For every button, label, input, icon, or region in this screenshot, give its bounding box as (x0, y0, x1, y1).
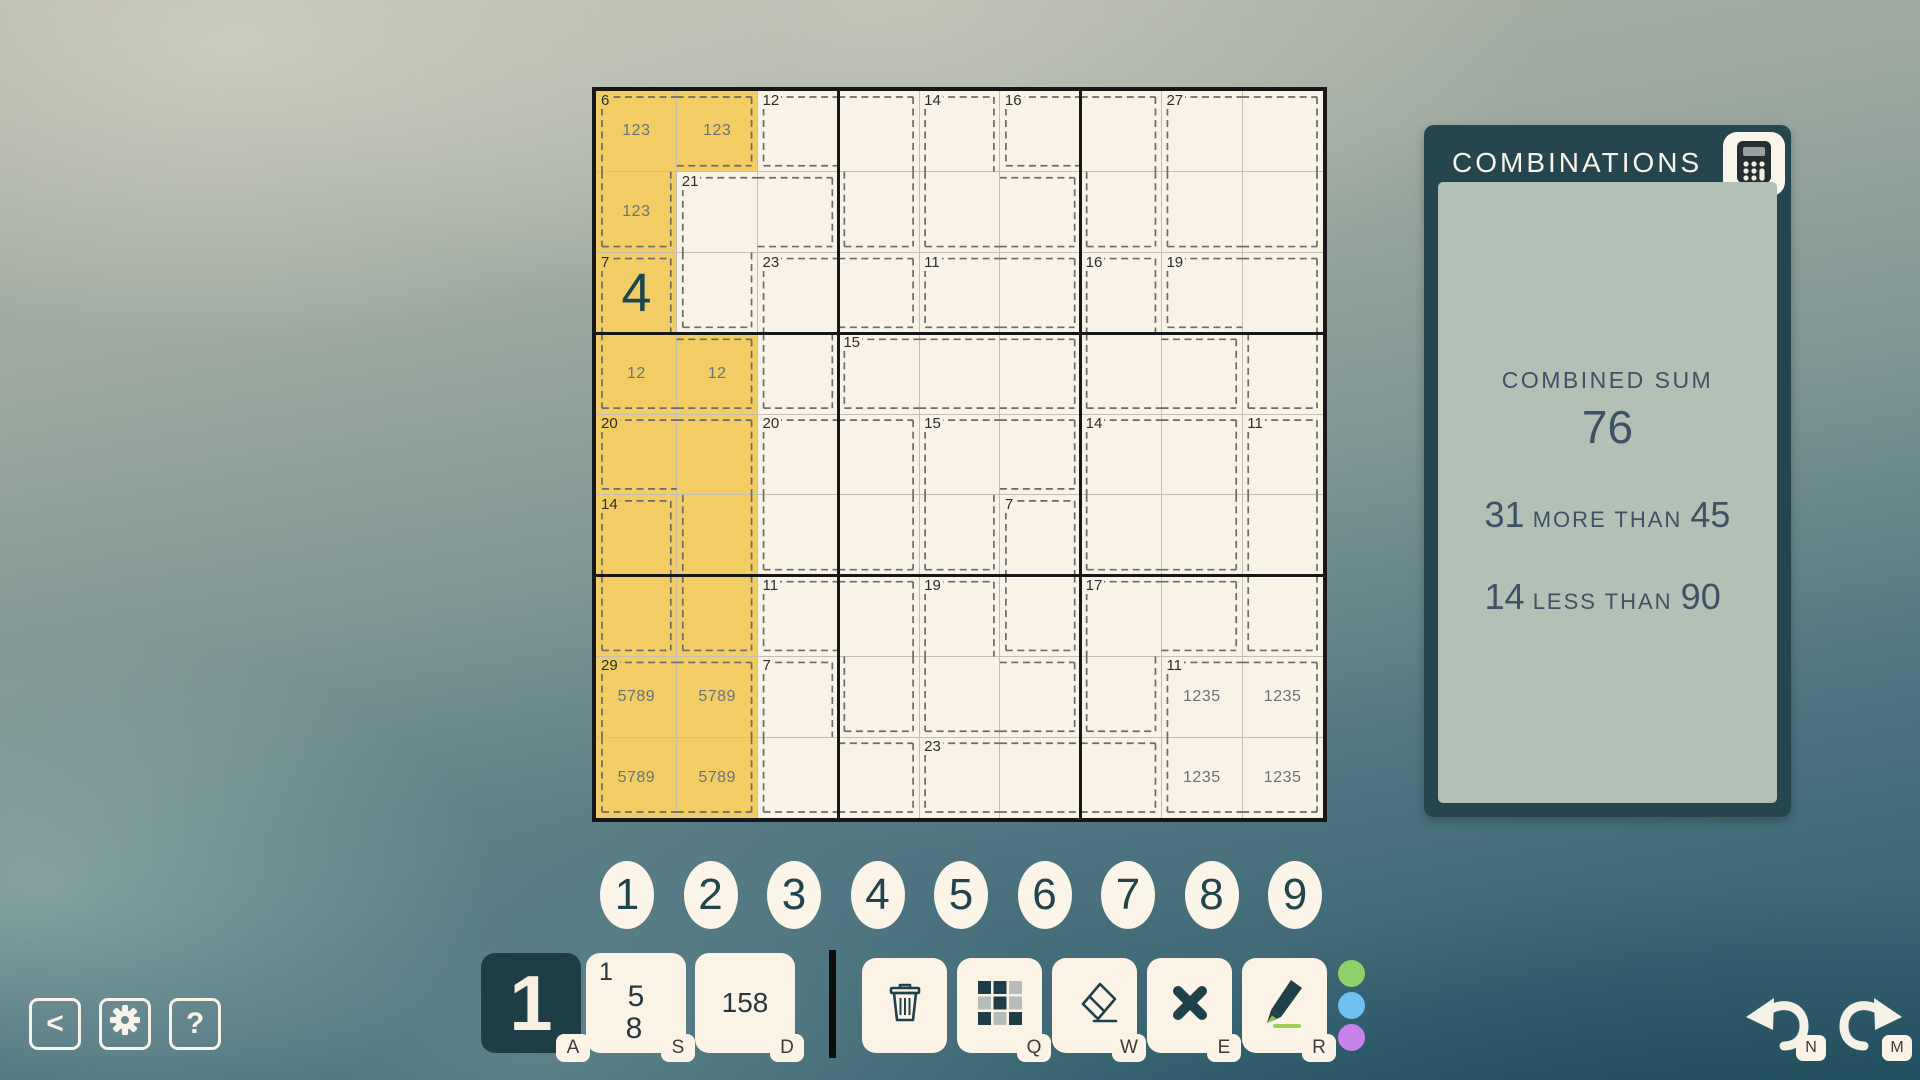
corner-marks-button[interactable]: 1 5 8S (586, 953, 686, 1053)
pencil-marks: 123 (677, 91, 758, 172)
key-hint-badge: A (556, 1034, 590, 1062)
comparison-line: 14 LESS THAN 90 (1485, 576, 1731, 618)
cage-sum-label: 23 (761, 254, 782, 271)
digit-button-2[interactable]: 2 (684, 861, 738, 929)
cage-sum-label: 17 (1084, 577, 1105, 594)
digit-button-3[interactable]: 3 (767, 861, 821, 929)
eraser-button[interactable]: W (1052, 958, 1137, 1053)
combined-sum-label: COMBINED SUM (1502, 367, 1713, 394)
selected-digit: 1 (509, 964, 552, 1042)
digit-button-4[interactable]: 4 (851, 861, 905, 929)
cage-sum-label: 12 (761, 92, 782, 109)
grid-marks-button[interactable]: Q (957, 958, 1042, 1053)
combinations-body: COMBINED SUM 76 31 MORE THAN 4514 LESS T… (1438, 182, 1777, 803)
cage-sum-label: 11 (1245, 415, 1265, 432)
pencil-marks: 1235 (1161, 737, 1242, 818)
sudoku-board[interactable]: 6121416272172311161915202015141114711191… (592, 87, 1327, 822)
cage-sum-label: 19 (922, 577, 943, 594)
cage-sum-label: 7 (761, 657, 773, 674)
corner-mark: 5 (628, 980, 645, 1014)
key-hint-badge: S (661, 1034, 695, 1062)
digit-button-9[interactable]: 9 (1268, 861, 1322, 929)
cage-sum-label: 23 (922, 738, 943, 755)
redo-button[interactable]: M (1828, 995, 1906, 1057)
marker-button[interactable]: R (1242, 958, 1327, 1053)
panel-title: COMBINATIONS (1452, 147, 1702, 179)
cage-sum-label: 7 (1003, 496, 1015, 513)
combined-sum-value: 76 (1582, 400, 1633, 454)
key-hint-badge: R (1302, 1034, 1336, 1062)
delete-button[interactable] (862, 958, 947, 1053)
cage-sum-label: 19 (1164, 254, 1185, 271)
digit-button-1[interactable]: 1 (600, 861, 654, 929)
active-digit-button[interactable]: 1A (481, 953, 581, 1053)
help-button[interactable]: ? (169, 998, 221, 1050)
undo-hint-badge: N (1796, 1035, 1826, 1061)
cage-sum-label: 11 (922, 254, 942, 271)
cage-sum-label: 14 (1084, 415, 1105, 432)
color-dot[interactable] (1338, 1024, 1365, 1051)
clear-button[interactable]: E (1147, 958, 1232, 1053)
pencil-marks: 1235 (1242, 656, 1323, 737)
pencil-marks: 5789 (596, 656, 677, 737)
key-hint-badge: D (770, 1034, 804, 1062)
back-icon: < (46, 1007, 64, 1041)
color-dot[interactable] (1338, 992, 1365, 1019)
pencil-marks: 123 (596, 172, 677, 253)
calculator-icon (1737, 141, 1771, 188)
box-border (1079, 91, 1082, 818)
pencil-marks: 5789 (677, 737, 758, 818)
grid-icon (975, 978, 1025, 1033)
cage-sum-label: 14 (599, 496, 620, 513)
toolbar-divider (829, 950, 836, 1058)
combinations-panel: COMBINATIONS COMBINED SUM 76 31 MORE THA… (1424, 125, 1791, 817)
redo-hint-badge: M (1882, 1035, 1912, 1061)
box-border (596, 574, 1323, 577)
cage-sum-label: 21 (680, 173, 701, 190)
cage-sum-label: 16 (1003, 92, 1024, 109)
gear-icon (102, 997, 148, 1051)
cage-sum-label: 15 (922, 415, 943, 432)
key-hint-badge: E (1207, 1034, 1241, 1062)
digit-button-8[interactable]: 8 (1185, 861, 1239, 929)
undo-button[interactable]: N (1742, 995, 1820, 1057)
key-hint-badge: W (1112, 1034, 1146, 1062)
corner-mark: 1 (599, 958, 613, 987)
pencil-marks: 12 (596, 333, 677, 414)
marker-icon (1259, 977, 1311, 1034)
pencil-marks: 12 (677, 333, 758, 414)
x-icon (1164, 977, 1216, 1034)
cage-sum-label: 15 (841, 334, 862, 351)
box-border (596, 332, 1323, 335)
digit-button-5[interactable]: 5 (934, 861, 988, 929)
digit-button-6[interactable]: 6 (1018, 861, 1072, 929)
back-button[interactable]: < (29, 998, 81, 1050)
cage-sum-label: 16 (1084, 254, 1105, 271)
color-dot[interactable] (1338, 960, 1365, 987)
pencil-marks: 1235 (1161, 656, 1242, 737)
trash-icon (879, 977, 931, 1034)
cage-sum-label: 11 (761, 577, 781, 594)
pencil-marks: 123 (596, 91, 677, 172)
digit-button-7[interactable]: 7 (1101, 861, 1155, 929)
cage-sum-label: 20 (599, 415, 620, 432)
cage-sum-label: 14 (922, 92, 943, 109)
comparison-line: 31 MORE THAN 45 (1485, 494, 1731, 536)
settings-button[interactable] (99, 998, 151, 1050)
box-border (837, 91, 840, 818)
center-marks-label: 158 (722, 987, 769, 1019)
center-marks-button[interactable]: 158D (695, 953, 795, 1053)
pencil-marks: 5789 (677, 656, 758, 737)
corner-mark: 8 (626, 1012, 643, 1046)
cell-value: 4 (596, 253, 677, 334)
cage-sum-label: 20 (761, 415, 782, 432)
question-icon: ? (186, 1007, 204, 1041)
pencil-marks: 1235 (1242, 737, 1323, 818)
pencil-marks: 5789 (596, 737, 677, 818)
app-window: 6121416272172311161915202015141114711191… (0, 0, 1920, 1080)
key-hint-badge: Q (1017, 1034, 1051, 1062)
eraser-icon (1069, 977, 1121, 1034)
cage-sum-label: 27 (1164, 92, 1185, 109)
